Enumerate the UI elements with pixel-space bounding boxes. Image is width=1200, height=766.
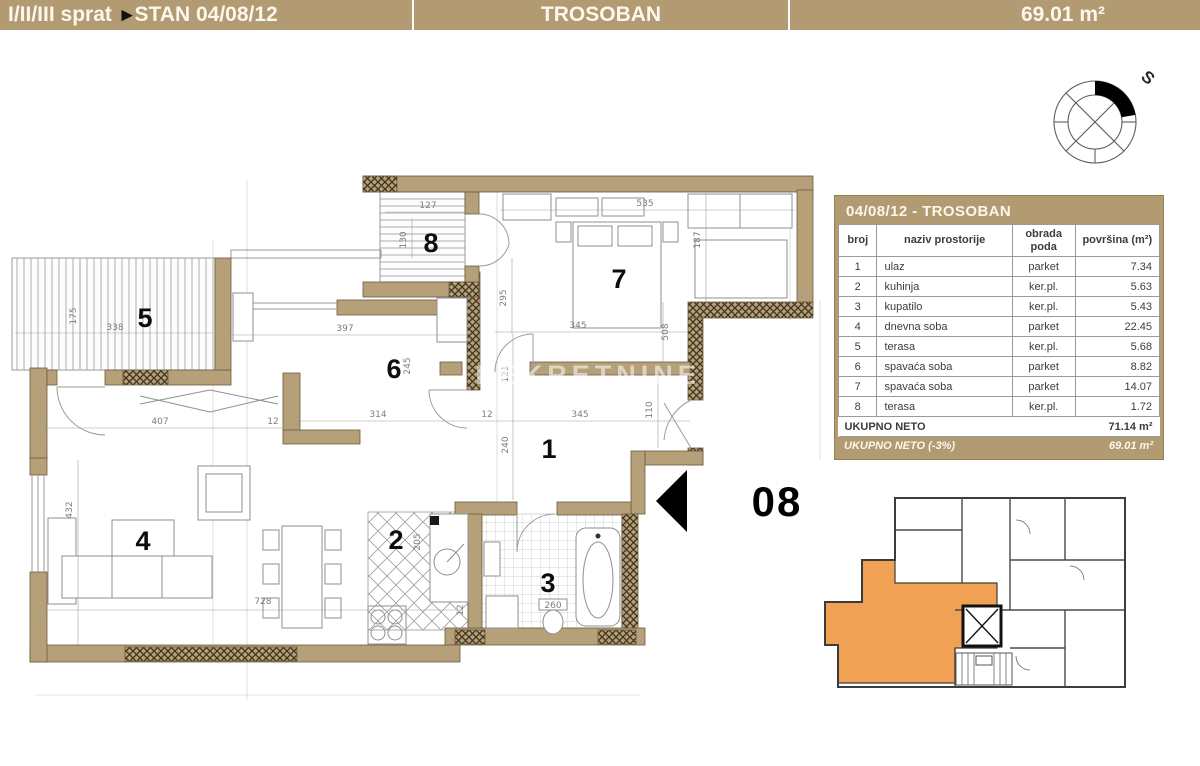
room-number-4: 4 (135, 526, 150, 556)
north-label: S (1137, 67, 1158, 89)
entrance-arrow-icon (656, 470, 687, 532)
room-number-7: 7 (611, 264, 626, 294)
floor-plan-drawing: 3381754071231412345121240110508345295535… (0, 36, 845, 736)
dimension-label: 130 (399, 231, 409, 248)
table-cell: 7.34 (1075, 257, 1159, 277)
table-row: 2kuhinjaker.pl.5.63 (839, 277, 1160, 297)
table-row: 3kupatiloker.pl.5.43 (839, 297, 1160, 317)
unit-number: 08 (752, 478, 803, 525)
col-povrsina: površina (m²) (1075, 225, 1159, 257)
col-broj: broj (839, 225, 877, 257)
room-number-2: 2 (388, 525, 403, 555)
table-cell: 6 (839, 357, 877, 377)
table-cell: parket (1012, 377, 1075, 397)
table-row: 4dnevna sobaparket22.45 (839, 317, 1160, 337)
dimension-label: 110 (645, 401, 655, 418)
table-cell: 7 (839, 377, 877, 397)
dimension-label: 12 (267, 417, 278, 427)
table-cell: ker.pl. (1012, 297, 1075, 317)
dimension-label: 205 (413, 533, 423, 550)
table-cell: terasa (877, 397, 1012, 417)
table-row: 6spavaća sobaparket8.82 (839, 357, 1160, 377)
col-naziv: naziv prostorije (877, 225, 1012, 257)
building-key-plan (820, 490, 1132, 695)
dimension-label: 260 (544, 601, 561, 611)
table-cell: spavaća soba (877, 357, 1012, 377)
table-cell: spavaća soba (877, 377, 1012, 397)
room-number-8: 8 (423, 228, 438, 258)
table-cell: ker.pl. (1012, 337, 1075, 357)
dimension-label: 345 (569, 321, 586, 331)
table-cell: terasa (877, 337, 1012, 357)
total-area-label: 69.01 m² (790, 0, 1200, 30)
total-row: UKUPNO NETO 71.14 m² (839, 417, 1160, 437)
title-bar: I/II/III sprat ►STAN 04/08/12 TROSOBAN 6… (0, 0, 1200, 30)
table-cell: ker.pl. (1012, 397, 1075, 417)
dimension-label: 508 (661, 323, 671, 340)
elevator (963, 606, 1001, 646)
table-row: 5terasaker.pl.5.68 (839, 337, 1160, 357)
floors-label: I/II/III sprat (8, 3, 112, 26)
table-row: 8terasaker.pl.1.72 (839, 397, 1160, 417)
table-cell: kuhinja (877, 277, 1012, 297)
room-number-6: 6 (386, 354, 401, 384)
apartment-type-label: TROSOBAN (414, 0, 788, 30)
dimension-label: 397 (336, 324, 353, 334)
area-table: 04/08/12 - TROSOBAN broj naziv prostorij… (835, 196, 1163, 459)
table-cell: dnevna soba (877, 317, 1012, 337)
dimension-label: 127 (419, 201, 436, 211)
dimension-label: 338 (106, 323, 123, 333)
table-cell: 5.68 (1075, 337, 1159, 357)
table-cell: 2 (839, 277, 877, 297)
dimension-label: 432 (65, 501, 75, 518)
room-number-5: 5 (137, 303, 152, 333)
dimension-label: 407 (151, 417, 168, 427)
dimension-label: 187 (693, 231, 703, 248)
dimension-label: 240 (501, 436, 511, 453)
floorplan-page: I/II/III sprat ►STAN 04/08/12 TROSOBAN 6… (0, 0, 1200, 766)
dimension-label: 295 (499, 289, 509, 306)
dimension-label: 12 (481, 410, 492, 420)
net-label: UKUPNO NETO (-3%) (844, 440, 955, 452)
watermark-text: NEKRETNINE (475, 360, 701, 390)
unit-marker: 08 (656, 470, 802, 532)
total-value: 71.14 m² (1075, 417, 1159, 437)
table-cell: parket (1012, 257, 1075, 277)
dimension-label: 12 (456, 604, 466, 615)
table-cell: parket (1012, 357, 1075, 377)
table-cell: 5.63 (1075, 277, 1159, 297)
room-number-3: 3 (540, 568, 555, 598)
table-row: 1ulazparket7.34 (839, 257, 1160, 277)
table-row: 7spavaća sobaparket14.07 (839, 377, 1160, 397)
table-header-row: broj naziv prostorije obrada poda površi… (839, 225, 1160, 257)
dimension-label: 535 (636, 199, 653, 209)
window-left (32, 475, 44, 572)
dimension-label: 314 (369, 410, 386, 420)
table-cell: kupatilo (877, 297, 1012, 317)
dimension-label: 175 (69, 307, 79, 324)
table-cell: 4 (839, 317, 877, 337)
dimension-label: 345 (571, 410, 588, 420)
table-cell: 8 (839, 397, 877, 417)
area-table-body: 1ulazparket7.342kuhinjaker.pl.5.633kupat… (839, 257, 1160, 417)
table-cell: parket (1012, 317, 1075, 337)
table-cell: 8.82 (1075, 357, 1159, 377)
table-cell: 1 (839, 257, 877, 277)
net-row: UKUPNO NETO (-3%) 69.01 m² (838, 437, 1160, 456)
col-obrada: obrada poda (1012, 225, 1075, 257)
table-cell: 1.72 (1075, 397, 1159, 417)
table-cell: ker.pl. (1012, 277, 1075, 297)
floor-and-unit-label: I/II/III sprat ►STAN 04/08/12 (0, 0, 412, 30)
dimension-label: 245 (403, 357, 413, 374)
terrace-5-floor (12, 258, 215, 370)
table-cell: ulaz (877, 257, 1012, 277)
railing (231, 250, 381, 258)
total-label: UKUPNO NETO (839, 417, 1076, 437)
stairs (956, 653, 1012, 685)
table-cell: 14.07 (1075, 377, 1159, 397)
unit-number-label: STAN 04/08/12 (135, 3, 278, 26)
table-cell: 5 (839, 337, 877, 357)
compass-rose: S (1040, 58, 1160, 176)
table-title: 04/08/12 - TROSOBAN (838, 199, 1160, 224)
table-cell: 22.45 (1075, 317, 1159, 337)
table-cell: 5.43 (1075, 297, 1159, 317)
net-value: 69.01 m² (1109, 440, 1153, 452)
room-number-1: 1 (541, 434, 556, 464)
dimension-label: 728 (254, 597, 271, 607)
arrow-right-icon: ► (118, 5, 135, 26)
table-cell: 3 (839, 297, 877, 317)
